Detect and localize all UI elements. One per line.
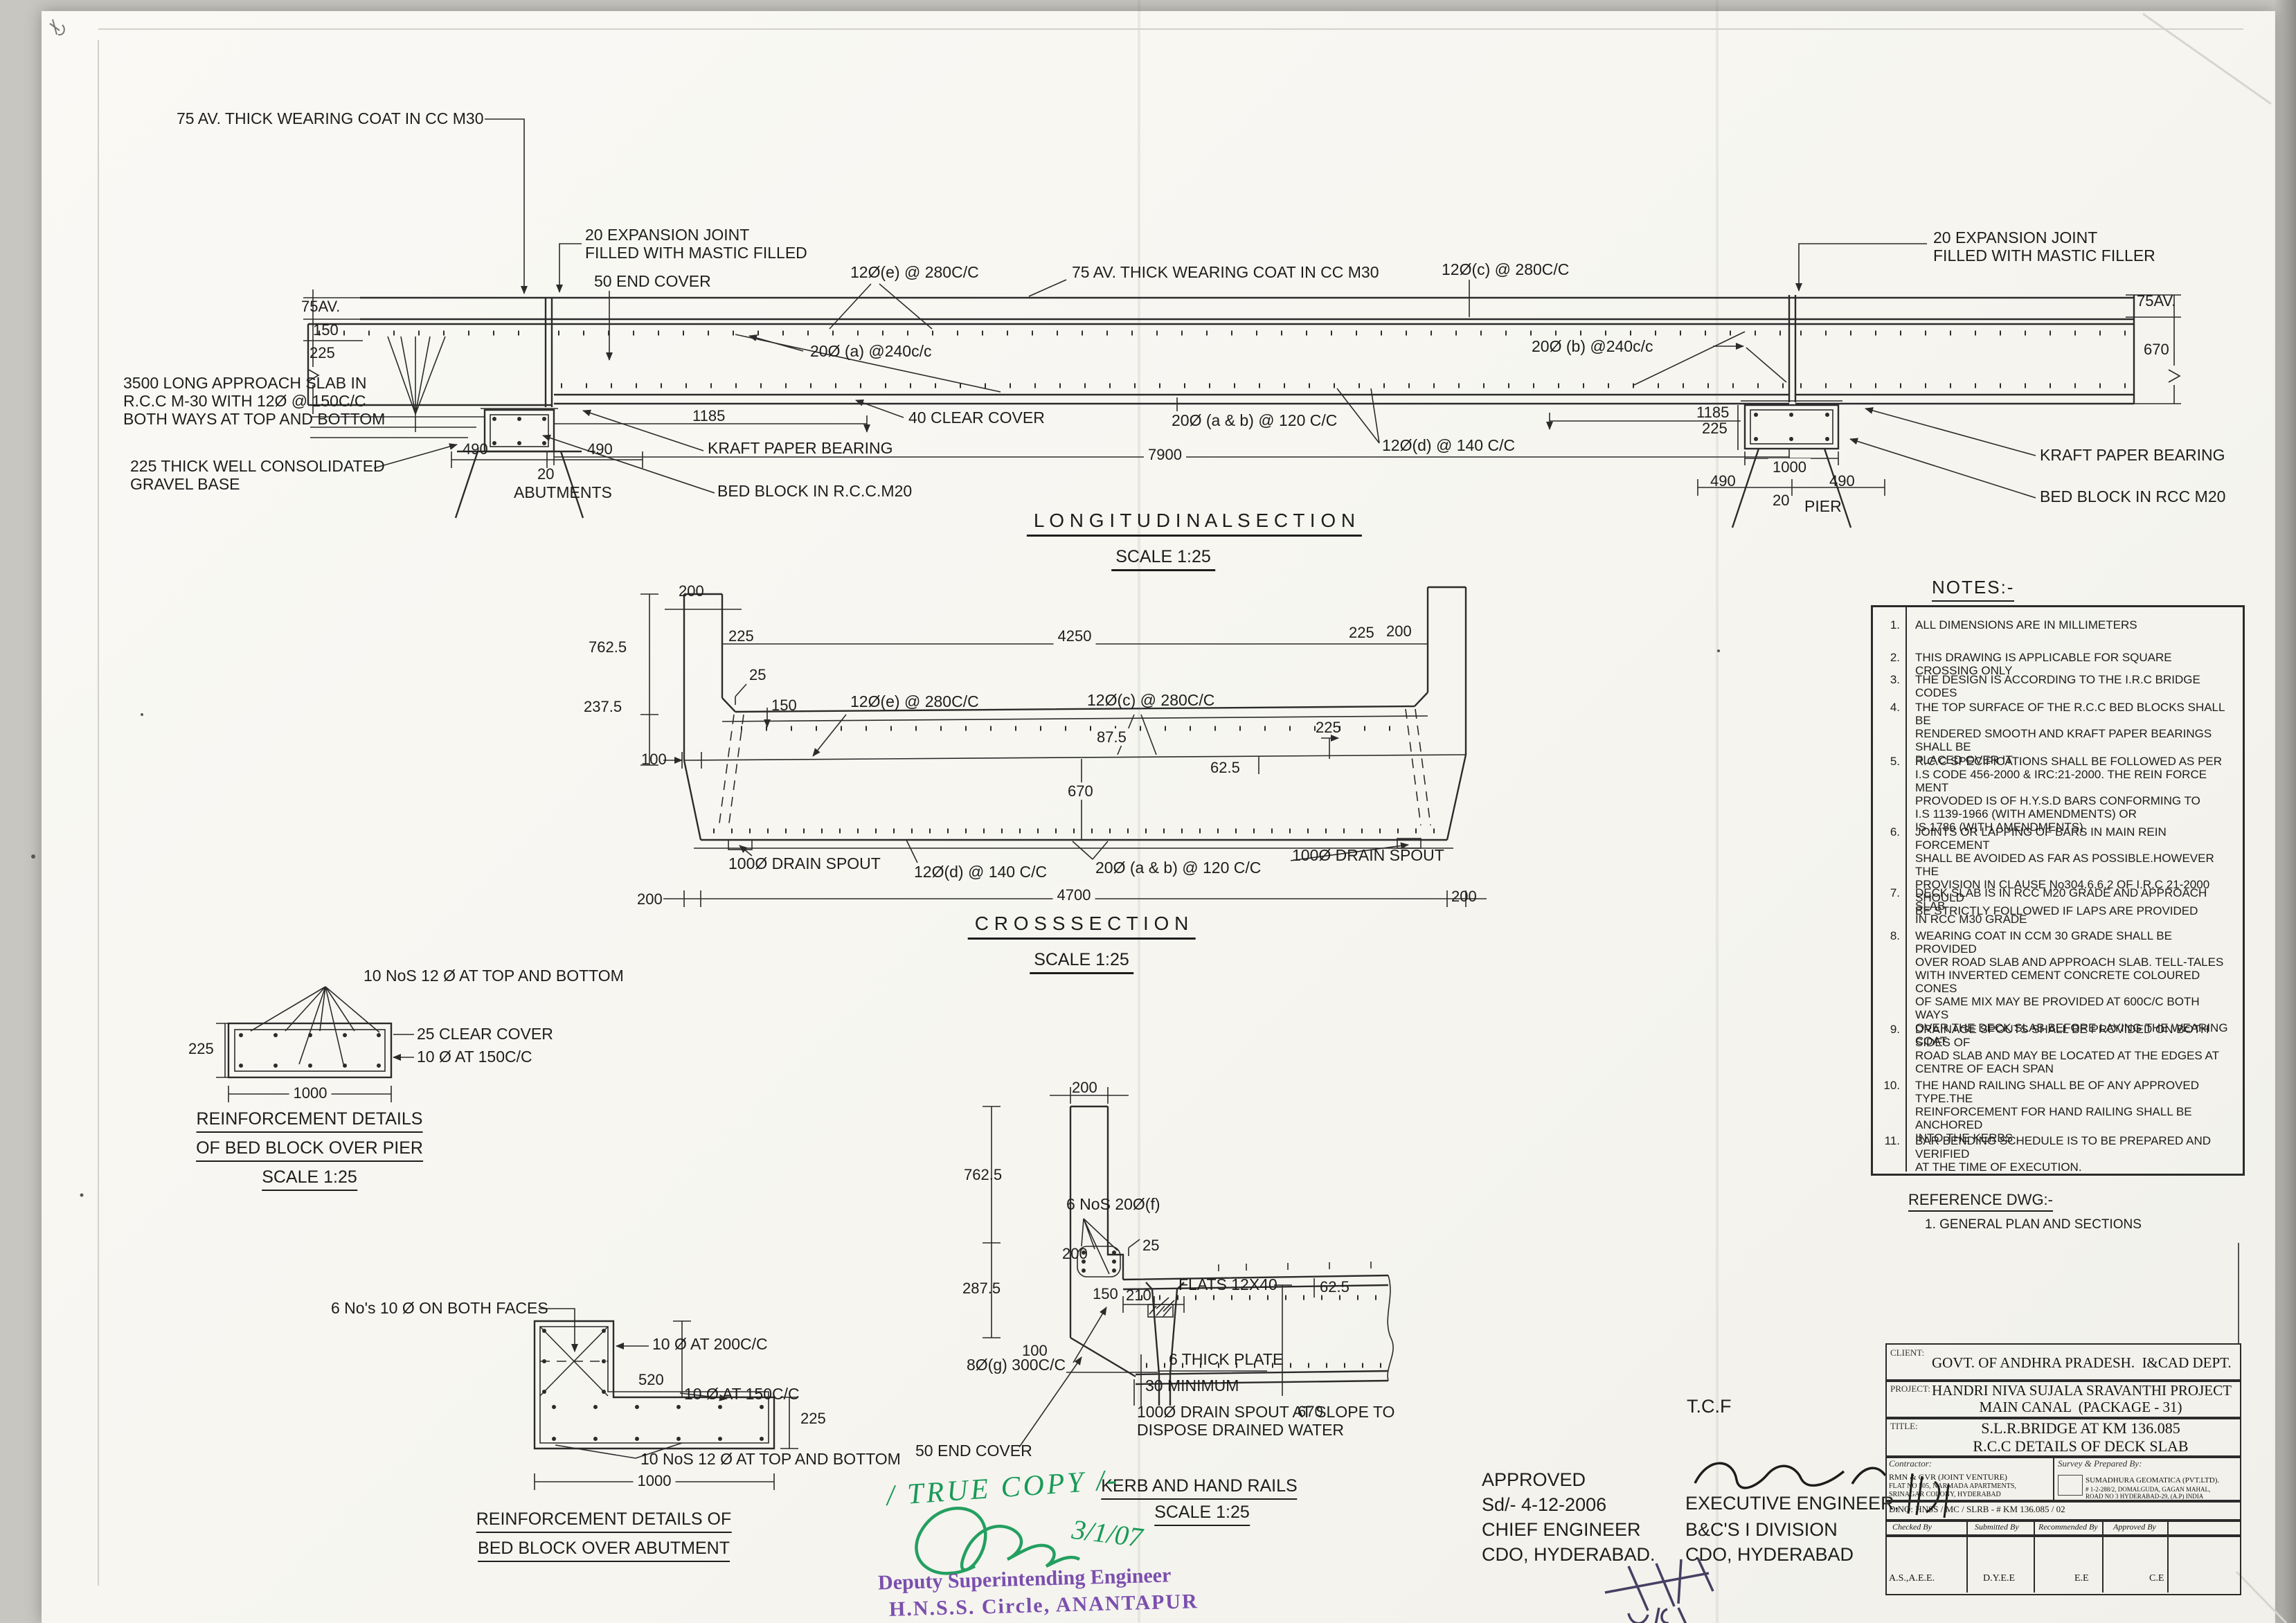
dim-4250: 4250 [1054, 627, 1096, 645]
label-kraft-paper-left: KRAFT PAPER BEARING [708, 439, 893, 457]
dim-200-top-left: 200 [679, 582, 704, 600]
pier-detail-title-2: OF BED BLOCK OVER PIER [196, 1138, 423, 1162]
dim-1185-right: 1185 [1696, 404, 1729, 421]
dim-kerb-25: 25 [1142, 1237, 1159, 1254]
note-number: 3. [1874, 673, 1900, 687]
contractor-value-3: SRINAGAR COLONY, HYDERABAD [1889, 1491, 2001, 1498]
dim-kerb-200-top: 200 [1072, 1079, 1097, 1096]
green-signature [916, 1508, 1079, 1573]
dim-abutment-225: 225 [800, 1410, 826, 1427]
bed-block-right [1745, 405, 1838, 449]
break-symbol [1388, 1275, 1393, 1381]
dim-4700: 4700 [1053, 886, 1095, 904]
sig-value-recommended: E.E [2074, 1573, 2089, 1584]
dim-490a-left: 490 [463, 440, 488, 458]
label-kerb-end-cover: 50 END COVER [915, 1442, 1032, 1460]
label-wearing-coat-left: 75 AV. THICK WEARING COAT IN CC M30 [177, 109, 484, 127]
dim-abutment-1000: 1000 [634, 1472, 676, 1489]
handwritten-initials [1605, 1558, 1713, 1623]
survey-label: Survey & Prepared By: [2058, 1458, 2142, 1469]
dim-150-left: 150 [313, 321, 339, 339]
titleblock-contractor-divider [2053, 1455, 2054, 1500]
contractor-value-2: FLAT NO 505, NARMADA APARTMENTS, [1889, 1482, 2016, 1490]
note-text: THE DESIGN IS ACCORDING TO THE I.R.C BRI… [1915, 673, 2231, 699]
sig-header-approved: Approved By [2113, 1522, 2156, 1532]
scanned-drawing-sheet: 75 AV. THICK WEARING COAT IN CC M30 20 E… [0, 0, 2296, 1623]
contractor-value-1: RMN & GVR (JOINT VENTURE) [1889, 1472, 2007, 1482]
titleblock-sig-divider [2034, 1519, 2035, 1593]
note-number: 5. [1874, 755, 1900, 769]
dim-pier-225: 225 [188, 1040, 214, 1057]
dim-1185-left: 1185 [692, 407, 725, 424]
label-abutment-bar-200: 10 Ø AT 200C/C [652, 1335, 768, 1353]
dim-670-cross: 670 [1064, 782, 1097, 800]
client-value: GOVT. OF ANDHRA PRADESH. I&CAD DEPT. [1932, 1354, 2230, 1372]
survey-value-2: # 1-2-288/2, DOMALGUDA, GAGAN MAHAL, [2086, 1486, 2210, 1493]
sig-value-checked: A.S.,A.E.E. [1889, 1573, 1935, 1584]
sig-header-submitted: Submitted By [1975, 1522, 2019, 1532]
label-wearing-coat-center: 75 AV. THICK WEARING COAT IN CC M30 [1072, 263, 1379, 281]
label-kerb-plate: 6 THICK PLATE [1169, 1350, 1283, 1368]
label-kraft-paper-right: KRAFT PAPER BEARING [2040, 446, 2225, 464]
reference-dwg-item: 1. GENERAL PLAN AND SECTIONS [1925, 1217, 2142, 1232]
label-pier-clear-cover: 25 CLEAR COVER [417, 1025, 553, 1043]
titleblock-sig-value-row [1885, 1534, 2241, 1595]
dim-762-5: 762.5 [589, 638, 627, 656]
longitudinal-section-drawing [303, 119, 2181, 528]
abutment-detail-title-1: REINFORCEMENT DETAILS OF [476, 1509, 732, 1533]
project-value-1: HANDRI NIVA SUJALA SRAVANTHI PROJECT [1932, 1382, 2230, 1399]
note-number: 7. [1874, 886, 1900, 900]
dim-62-5-cross: 62.5 [1210, 759, 1240, 776]
dim-kerb-210: 210 [1126, 1286, 1151, 1304]
executive-engineer-line-3: CDO, HYDERABAD [1685, 1544, 1854, 1566]
dim-490b-left: 490 [587, 440, 613, 458]
label-bar-d: 12Ø(d) @ 140 C/C [1382, 436, 1515, 454]
label-clear-cover-40: 40 CLEAR COVER [908, 409, 1045, 427]
survey-value-3: ROAD NO 3 HYDERABAD-29, (A.P) INDIA [2086, 1493, 2203, 1500]
dim-225-kerb-left: 225 [728, 627, 754, 645]
label-drain-spout-left: 100Ø DRAIN SPOUT [728, 854, 881, 872]
dim-kerb-200-loop: 200 [1062, 1245, 1088, 1262]
label-kerb-bars-f: 6 NoS 20Ø(f) [1066, 1195, 1160, 1213]
label-bar-c-cross: 12Ø(c) @ 280C/C [1087, 691, 1214, 709]
dim-200-bottom-left: 200 [637, 890, 663, 908]
dim-225-left: 225 [310, 344, 335, 361]
label-expansion-joint-right: 20 EXPANSION JOINT FILLED WITH MASTIC FI… [1933, 228, 2155, 264]
dim-kerb-287-5: 287.5 [962, 1280, 1001, 1297]
longitudinal-section-title: L O N G I T U D I N A L S E C T I O N [1027, 510, 1362, 537]
label-pier: PIER [1804, 497, 1842, 515]
label-bar-e: 12Ø(e) @ 280C/C [850, 263, 979, 281]
label-approach-slab: 3500 LONG APPROACH SLAB IN R.C.C M-30 WI… [123, 374, 385, 429]
sig-header-checked: Checked By [1892, 1522, 1932, 1532]
dim-1000-right: 1000 [1768, 458, 1811, 476]
note-text: BAR BENDING SCHEDULE IS TO BE PREPARED A… [1915, 1134, 2231, 1174]
executive-engineer-signature [1695, 1463, 1885, 1488]
label-bar-ab: 20Ø (a & b) @ 120 C/C [1172, 411, 1337, 429]
survey-value-1: SUMADHURA GEOMATICA (PVT.LTD). [2086, 1476, 2219, 1485]
dim-490b-right: 490 [1829, 472, 1855, 490]
label-kerb-bar-g: 8Ø(g) 300C/C [967, 1356, 1066, 1374]
label-pier-bars: 10 NoS 12 Ø AT TOP AND BOTTOM [364, 967, 624, 985]
dim-87-5: 87.5 [1093, 728, 1131, 746]
dim-pier-1000: 1000 [289, 1084, 332, 1102]
cross-section-title: C R O S S S E C T I O N [968, 913, 1196, 940]
label-kerb-30-min: 30 MINIMUM [1145, 1377, 1239, 1395]
sig-header-recommended: Recommended By [2038, 1522, 2098, 1532]
note-number: 10. [1874, 1079, 1900, 1093]
surveyor-logo [2058, 1475, 2083, 1496]
label-pier-stirrups: 10 Ø AT 150C/C [417, 1048, 532, 1066]
label-bar-e-cross: 12Ø(e) @ 280C/C [850, 692, 979, 710]
approved-line-2: Sd/- 4-12-2006 [1482, 1494, 1606, 1516]
dim-20-right: 20 [1773, 492, 1789, 509]
dim-100-cross: 100 [641, 751, 667, 768]
longitudinal-section-scale: SCALE 1:25 [1111, 547, 1215, 571]
contractor-label: Contractor: [1889, 1458, 1932, 1469]
note-number: 4. [1874, 701, 1900, 715]
note-number: 8. [1874, 929, 1900, 943]
pier-detail-scale: SCALE 1:25 [262, 1167, 357, 1191]
titleblock-sig-divider [2167, 1519, 2169, 1593]
pier-detail-title-1: REINFORCEMENT DETAILS [197, 1109, 423, 1133]
title-value-1: S.L.R.BRIDGE AT KM 136.085 [1932, 1419, 2230, 1437]
wearing-coat-lines [360, 298, 2134, 319]
dim-75av-left: 75AV. [301, 298, 340, 315]
dim-200-top-right: 200 [1386, 622, 1412, 640]
executive-engineer-line-2: B&C'S I DIVISION [1685, 1519, 1838, 1541]
notes-title: NOTES:- [1932, 577, 2014, 602]
dim-kerb-62-5: 62.5 [1320, 1278, 1349, 1295]
title-value-2: R.C.C DETAILS OF DECK SLAB [1932, 1437, 2230, 1455]
label-abutment-bar-150: 10 Ø AT 150C/C [684, 1385, 800, 1403]
label-abutment-faces: 6 No's 10 Ø ON BOTH FACES [331, 1299, 548, 1317]
reference-dwg-title: REFERENCE DWG:- [1908, 1191, 2053, 1212]
project-label: PROJECT: [1890, 1383, 1930, 1395]
tcf-mark: T.C.F [1687, 1396, 1732, 1417]
note-text: R.C.C SPECIFICATIONS SHALL BE FOLLOWED A… [1915, 755, 2231, 834]
label-expansion-joint-left: 20 EXPANSION JOINT FILLED WITH MASTIC FI… [585, 226, 807, 262]
titleblock-sig-divider [1966, 1519, 1968, 1593]
approved-line-4: CDO, HYDERABAD. [1482, 1544, 1656, 1566]
dim-abutment-520: 520 [638, 1371, 664, 1388]
label-bed-block-left: BED BLOCK IN R.C.C.M20 [717, 482, 912, 500]
dim-25-cross: 25 [749, 666, 766, 683]
approved-line-1: APPROVED [1482, 1469, 1586, 1491]
dim-237-5: 237.5 [584, 698, 622, 715]
note-text: DECK SLAB IS IN RCC M20 GRADE AND APPROA… [1915, 886, 2231, 926]
label-bar-ab-cross: 20Ø (a & b) @ 120 C/C [1095, 859, 1261, 877]
dim-7900: 7900 [1144, 446, 1186, 463]
executive-engineer-line-1: EXECUTIVE ENGINEER, [1685, 1493, 1899, 1514]
label-drain-spout-right: 100Ø DRAIN SPOUT [1292, 846, 1444, 864]
project-value-2: MAIN CANAL (PACKAGE - 31) [1932, 1399, 2230, 1416]
note-number: 1. [1874, 618, 1900, 632]
note-text: DRAINAGE SPOUTS SHALL BE PROVIDED ON BOT… [1915, 1023, 2231, 1075]
dim-200-bottom-right: 200 [1451, 888, 1477, 905]
dim-kerb-762-5: 762.5 [964, 1166, 1002, 1183]
label-bar-b: 20Ø (b) @240c/c [1532, 337, 1653, 355]
label-bar-a: 20Ø (a) @240c/c [810, 342, 931, 360]
label-bar-c: 12Ø(c) @ 280C/C [1442, 260, 1569, 278]
label-gravel-base: 225 THICK WELL CONSOLIDATED GRAVEL BASE [130, 457, 385, 493]
note-number: 6. [1874, 825, 1900, 839]
dim-20-left: 20 [537, 465, 554, 483]
label-bed-block-right: BED BLOCK IN RCC M20 [2040, 487, 2225, 505]
note-number: 11. [1874, 1134, 1900, 1148]
dim-75av-right: 75AV. [2137, 292, 2176, 310]
dim-225-right: 225 [1702, 420, 1728, 437]
dim-225-inner: 225 [1316, 719, 1341, 736]
kerb-detail-scale: SCALE 1:25 [1154, 1503, 1250, 1526]
notes-number-divider [1905, 605, 1907, 1172]
sig-value-approved: C.E [2149, 1573, 2164, 1584]
dim-150-cross: 150 [771, 697, 797, 714]
abutment-detail-title-2: BED BLOCK OVER ABUTMENT [478, 1539, 730, 1562]
dim-kerb-150: 150 [1093, 1285, 1118, 1302]
dno-value: D.NO: HNSS / MC / SLRB - # KM 136.085 / … [1889, 1504, 2065, 1515]
label-bar-d-cross: 12Ø(d) @ 140 C/C [914, 863, 1047, 881]
titleblock-sig-divider [2102, 1519, 2104, 1593]
cross-section-scale: SCALE 1:25 [1030, 950, 1133, 974]
note-text: ALL DIMENSIONS ARE IN MILLIMETERS [1915, 618, 2231, 631]
label-abutments: ABUTMENTS [514, 483, 612, 501]
sig-value-submitted: D.Y.E.E [1983, 1573, 2015, 1584]
approved-line-3: CHIEF ENGINEER [1482, 1519, 1641, 1541]
dim-225-kerb-right: 225 [1349, 624, 1374, 641]
client-label: CLIENT: [1890, 1347, 1924, 1359]
dim-670-right: 670 [2144, 341, 2169, 358]
label-end-cover: 50 END COVER [594, 272, 711, 290]
note-number: 9. [1874, 1023, 1900, 1037]
title-label: TITLE: [1890, 1421, 1918, 1432]
kerb-detail-title: KERB AND HAND RAILS [1101, 1476, 1297, 1500]
label-abutment-bars: 10 NoS 12 Ø AT TOP AND BOTTOM [640, 1450, 901, 1468]
note-number: 2. [1874, 651, 1900, 665]
dim-490a-right: 490 [1710, 472, 1736, 490]
label-kerb-flats: FLATS 12X40 [1178, 1275, 1277, 1293]
label-kerb-drain: 100Ø DRAIN SPOUT AT SLOPE TO DISPOSE DRA… [1137, 1403, 1394, 1439]
pencil-mark [50, 19, 64, 35]
